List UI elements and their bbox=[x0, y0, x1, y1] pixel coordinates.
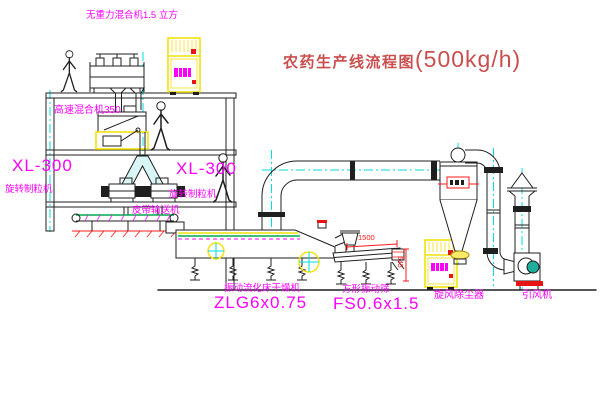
label-gravity-mixer: 无重力混合机1.5 立方 bbox=[86, 11, 178, 21]
fan-motor bbox=[527, 261, 539, 273]
vortex-finder bbox=[451, 148, 465, 162]
dim-sieve-length: 1500 bbox=[358, 234, 375, 242]
title-capacity: (500kg/h) bbox=[415, 46, 521, 72]
person-figure bbox=[61, 51, 76, 92]
rotary-discharge bbox=[451, 251, 469, 259]
belt-conveyor bbox=[72, 214, 178, 231]
fan-base bbox=[516, 281, 543, 286]
blower-symbol bbox=[299, 252, 319, 272]
label-dust-collector: 旋风除尘器 bbox=[434, 291, 484, 301]
cyclone-separator bbox=[438, 148, 479, 264]
cabinet-label-marks bbox=[431, 263, 448, 271]
dust-collector-cabinet bbox=[425, 240, 457, 290]
label-granulator-mid-model: XL-300 bbox=[176, 160, 237, 177]
person-figure bbox=[152, 102, 170, 150]
induced-draft-fan bbox=[504, 253, 543, 290]
y-splitter-chute bbox=[122, 156, 163, 184]
cad-flow-diagram: 农药生产线流程图(500kg/h) 无重力混合机1.5 立方 高速混合机350 … bbox=[0, 0, 600, 403]
label-high-speed-mixer: 高速混合机350 bbox=[54, 106, 121, 116]
label-induced-fan: 引风机 bbox=[522, 291, 552, 301]
title-chinese: 农药生产线流程图 bbox=[283, 54, 415, 71]
label-granulator-left-model: XL-300 bbox=[12, 157, 73, 174]
gravity-free-mixer bbox=[90, 54, 144, 112]
indicator-light-icon bbox=[191, 49, 196, 54]
cabinet-label-marks bbox=[174, 68, 191, 77]
label-granulator-left-name: 旋转制粒机 bbox=[5, 185, 53, 195]
label-dryer-model: ZLG6x0.75 bbox=[214, 294, 307, 311]
blower-symbol bbox=[208, 243, 224, 259]
label-belt-conveyor: 皮带输送机 bbox=[132, 206, 180, 216]
rain-cap-icon bbox=[511, 173, 533, 188]
label-granulator-mid-name: 旋转制粒机 bbox=[169, 190, 217, 200]
label-sieve-model: FS0.6x1.5 bbox=[333, 295, 420, 312]
exhaust-duct bbox=[258, 161, 440, 230]
control-cabinet bbox=[168, 38, 200, 95]
diagram-title: 农药生产线流程图(500kg/h) bbox=[283, 46, 521, 73]
fluid-bed-dryer bbox=[166, 220, 344, 280]
dim-sieve-height: 545 bbox=[396, 256, 403, 268]
platform-edge bbox=[72, 231, 178, 237]
